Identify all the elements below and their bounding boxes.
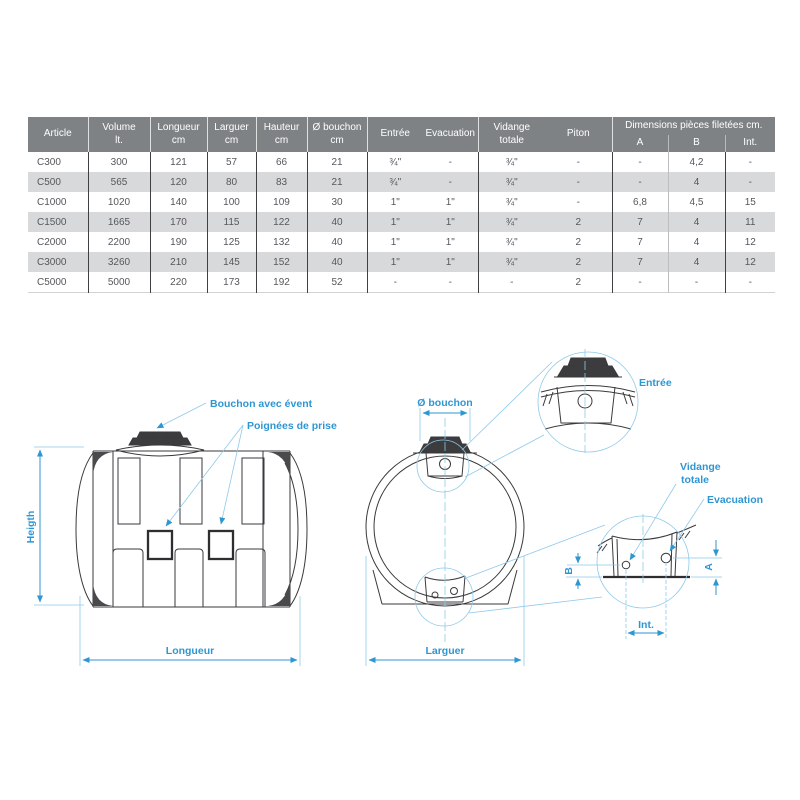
table-cell: 152 xyxy=(256,252,307,272)
table-cell: 2 xyxy=(545,272,612,293)
col-header-dim-a: A xyxy=(612,135,668,152)
table-cell: - xyxy=(545,152,612,172)
drain-label-line1: Vidange xyxy=(680,461,721,473)
col-header-evacuation: Evacuation xyxy=(423,117,478,152)
dimension-annotations: Heigth Longueur Bouchon avec évent Poign… xyxy=(25,349,763,666)
table-row: C20002200190125132401"1"¾"27412 xyxy=(28,232,775,252)
table-cell: 1" xyxy=(367,252,423,272)
table-cell: 132 xyxy=(256,232,307,252)
table-cell: - xyxy=(725,272,775,293)
spec-table: Article Volumelt. Longueurcm Larguercm H… xyxy=(28,117,775,293)
dim-a-label: A xyxy=(703,563,715,571)
col-header-vidange: Vidangetotale xyxy=(478,117,545,152)
table-cell: - xyxy=(612,272,668,293)
table-row: C10001020140100109301"1"¾"-6,84,515 xyxy=(28,192,775,212)
dim-b-label: B xyxy=(563,567,575,575)
table-cell: ¾" xyxy=(478,172,545,192)
table-cell: 140 xyxy=(150,192,207,212)
table-cell: 120 xyxy=(150,172,207,192)
outlet-label: Evacuation xyxy=(707,494,763,506)
table-cell: 4,5 xyxy=(668,192,725,212)
table-cell: - xyxy=(423,172,478,192)
col-header-dimensions-group: Dimensions pièces filetées cm. xyxy=(612,117,775,135)
cap-label: Bouchon avec évent xyxy=(210,398,313,410)
table-cell: 1665 xyxy=(88,212,150,232)
table-cell: 2 xyxy=(545,212,612,232)
detail-view-inlet xyxy=(541,358,635,429)
table-cell: ¾" xyxy=(367,172,423,192)
drain-label-line2: totale xyxy=(681,474,709,486)
table-cell: - xyxy=(612,152,668,172)
table-cell: C1500 xyxy=(28,212,88,232)
table-cell: 300 xyxy=(88,152,150,172)
table-cell: 192 xyxy=(256,272,307,293)
table-cell: - xyxy=(545,172,612,192)
table-cell: 21 xyxy=(307,152,367,172)
dim-length-label: Longueur xyxy=(166,645,214,657)
inlet-label: Entrée xyxy=(639,377,672,389)
table-cell: 565 xyxy=(88,172,150,192)
table-cell: - xyxy=(725,172,775,192)
col-header-longueur: Longueurcm xyxy=(150,117,207,152)
table-cell: 4 xyxy=(668,232,725,252)
col-header-dim-int: Int. xyxy=(725,135,775,152)
table-cell: ¾" xyxy=(478,152,545,172)
table-cell: 5000 xyxy=(88,272,150,293)
table-cell: 115 xyxy=(207,212,256,232)
table-cell: - xyxy=(612,172,668,192)
table-cell: 1" xyxy=(367,232,423,252)
table-cell: 125 xyxy=(207,232,256,252)
col-header-larguer: Larguercm xyxy=(207,117,256,152)
table-row: C500565120808321¾"-¾"--4- xyxy=(28,172,775,192)
col-header-dim-b: B xyxy=(668,135,725,152)
table-cell: C1000 xyxy=(28,192,88,212)
table-cell: 4,2 xyxy=(668,152,725,172)
table-cell: - xyxy=(367,272,423,293)
table-cell: 12 xyxy=(725,252,775,272)
table-cell: C3000 xyxy=(28,252,88,272)
table-cell: 66 xyxy=(256,152,307,172)
table-cell: ¾" xyxy=(478,252,545,272)
table-row: C300300121576621¾"-¾"--4,2- xyxy=(28,152,775,172)
col-header-piton: Piton xyxy=(545,117,612,152)
table-cell: 1" xyxy=(423,212,478,232)
dim-width-label: Larguer xyxy=(425,645,464,657)
table-cell: 1" xyxy=(423,192,478,212)
col-header-bouchon: Ø bouchoncm xyxy=(307,117,367,152)
table-cell: C2000 xyxy=(28,232,88,252)
table-cell: - xyxy=(725,152,775,172)
table-cell: C500 xyxy=(28,172,88,192)
table-cell: 6,8 xyxy=(612,192,668,212)
table-cell: 40 xyxy=(307,232,367,252)
table-cell: 40 xyxy=(307,252,367,272)
table-cell: 2 xyxy=(545,252,612,272)
table-cell: 7 xyxy=(612,252,668,272)
table-cell: 7 xyxy=(612,212,668,232)
table-cell: 109 xyxy=(256,192,307,212)
dim-height-label: Heigth xyxy=(25,511,37,544)
table-cell: 15 xyxy=(725,192,775,212)
table-cell: 2200 xyxy=(88,232,150,252)
table-cell: - xyxy=(478,272,545,293)
table-cell: 12 xyxy=(725,232,775,252)
table-cell: 220 xyxy=(150,272,207,293)
table-cell: 1" xyxy=(367,192,423,212)
table-cell: ¾" xyxy=(478,212,545,232)
table-cell: - xyxy=(668,272,725,293)
datasheet-page: { "colors":{ "accent_blue":"#2e96d2", "h… xyxy=(0,0,800,800)
table-cell: ¾" xyxy=(478,232,545,252)
technical-drawings: Heigth Longueur Bouchon avec évent Poign… xyxy=(0,340,800,675)
table-cell: 3260 xyxy=(88,252,150,272)
table-cell: 52 xyxy=(307,272,367,293)
table-cell: 1020 xyxy=(88,192,150,212)
table-cell: 122 xyxy=(256,212,307,232)
table-body: C300300121576621¾"-¾"--4,2-C500565120808… xyxy=(28,152,775,293)
table-row: C30003260210145152401"1"¾"27412 xyxy=(28,252,775,272)
table-cell: C5000 xyxy=(28,272,88,293)
col-header-hauteur: Hauteurcm xyxy=(256,117,307,152)
table-row: C15001665170115122401"1"¾"27411 xyxy=(28,212,775,232)
table-cell: 173 xyxy=(207,272,256,293)
tank-side-view xyxy=(76,432,307,607)
table-cell: 7 xyxy=(612,232,668,252)
table-cell: 170 xyxy=(150,212,207,232)
table-cell: 121 xyxy=(150,152,207,172)
table-cell: 100 xyxy=(207,192,256,212)
table-cell: 4 xyxy=(668,172,725,192)
table-cell: 30 xyxy=(307,192,367,212)
table-cell: 80 xyxy=(207,172,256,192)
table-cell: 11 xyxy=(725,212,775,232)
table-cell: 190 xyxy=(150,232,207,252)
table-cell: 145 xyxy=(207,252,256,272)
table-cell: 1" xyxy=(423,252,478,272)
table-cell: - xyxy=(423,272,478,293)
table-cell: - xyxy=(545,192,612,212)
table-row: C5000500022017319252---2--- xyxy=(28,272,775,293)
table-cell: 83 xyxy=(256,172,307,192)
handles-label: Poignées de prise xyxy=(247,420,337,432)
table-cell: ¾" xyxy=(367,152,423,172)
table-cell: 57 xyxy=(207,152,256,172)
col-header-entree: Entrée xyxy=(367,117,423,152)
dim-int-label: Int. xyxy=(638,619,654,631)
table-cell: 21 xyxy=(307,172,367,192)
table-cell: 1" xyxy=(423,232,478,252)
table-cell: 40 xyxy=(307,212,367,232)
table-cell: 1" xyxy=(367,212,423,232)
table-cell: ¾" xyxy=(478,192,545,212)
table-header: Article Volumelt. Longueurcm Larguercm H… xyxy=(28,117,775,152)
table-cell: 4 xyxy=(668,212,725,232)
col-header-article: Article xyxy=(28,117,88,152)
table-cell: 210 xyxy=(150,252,207,272)
table-cell: 2 xyxy=(545,232,612,252)
table-cell: C300 xyxy=(28,152,88,172)
col-header-volume: Volumelt. xyxy=(88,117,150,152)
table-cell: - xyxy=(423,152,478,172)
table-cell: 4 xyxy=(668,252,725,272)
dim-cap-diameter-label: Ø bouchon xyxy=(417,397,472,409)
